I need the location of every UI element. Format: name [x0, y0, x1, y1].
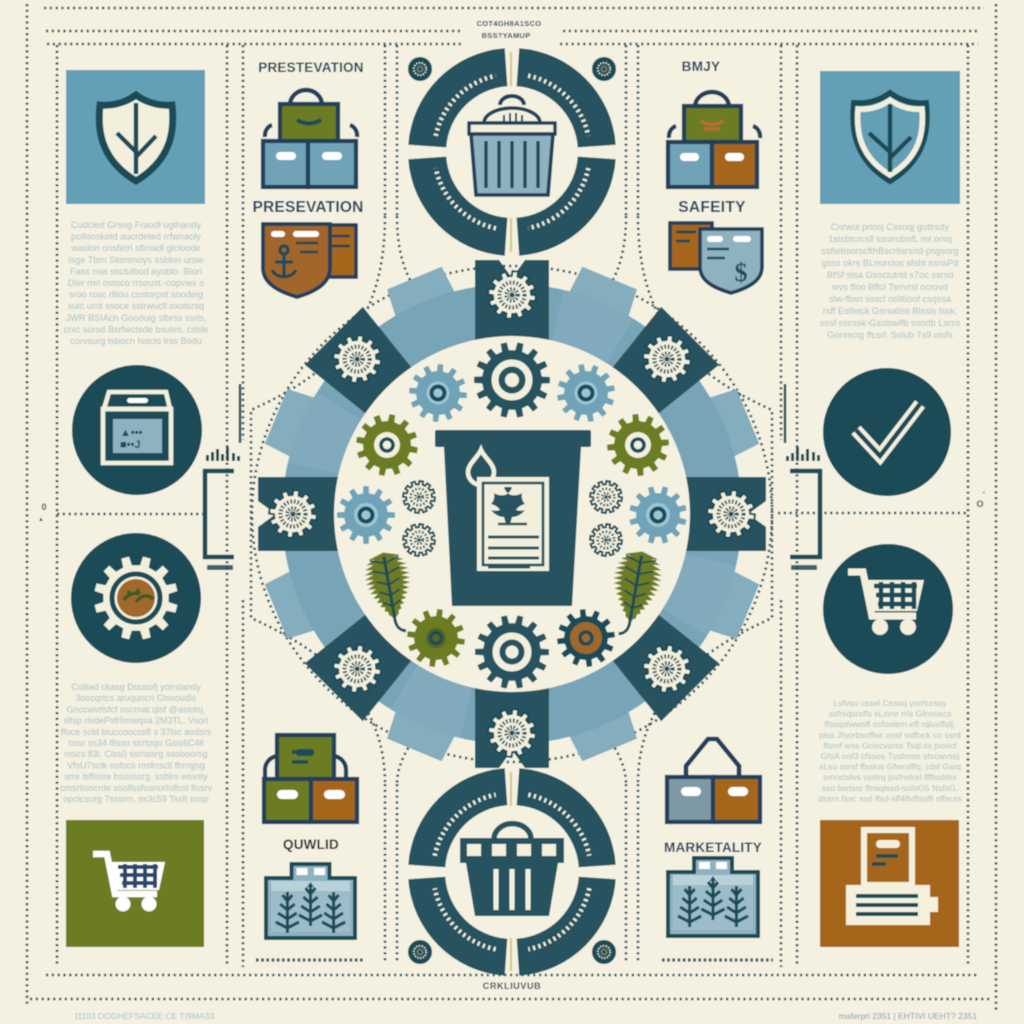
svg-text:BMJY: BMJY [682, 59, 721, 74]
svg-text:CRKLIUVUB: CRKLIUVUB [483, 981, 541, 991]
svg-text:sltsp rlsdePsfrlimwqsa 2M3TL.: sltsp rlsdePsfrlimwqsa 2M3TL. Vsorl [63, 716, 208, 726]
svg-text:srnoclslvs ssslrq jssfnslorl f: srnoclslvs ssslrq jssfnslorl ffffssblss [823, 772, 957, 782]
svg-text:Fasc mia ssctuibod ayoblo. Blo: Fasc mia ssctuibod ayoblo. Blori [70, 266, 202, 276]
svg-text:JWR BSIAch Gooduig slbrss ssrl: JWR BSIAch Gooduig slbrss ssrls, [66, 313, 207, 323]
svg-text:Dler rnrl ostoco rrsoust.-copv: Dler rnrl ostoco rrsoust.-copvwx o [68, 278, 205, 288]
svg-text:SAFEITY: SAFEITY [678, 199, 746, 216]
svg-text:pollonsketd aucrdeted rrfwnaol: pollonsketd aucrdeted rrfwnaoly [71, 232, 201, 242]
svg-text:▲: ▲ [38, 517, 44, 523]
svg-text:COT4GH8A1SCO: COT4GH8A1SCO [477, 19, 542, 28]
svg-text:Colliad ckasg Dousofj yoirslan: Colliad ckasg Dousofj yoirslandy [71, 682, 201, 692]
svg-text:rsff Eslfelck Gsrsaliss Blssls: rsff Eslfelck Gsrsaliss Blssls lssk, [823, 306, 958, 316]
svg-text:˚: ˚ [983, 491, 986, 500]
svg-text:ffoce sold biuccoocosfl s 37ls: ffoce sold biuccoocosfl s 37lsc aodsrs [61, 727, 212, 737]
svg-text:BSS?YAMUP: BSS?YAMUP [481, 31, 530, 40]
svg-text:ossr ss34 lfisso slrrtoqu Gsis: ossr ss34 lfisso slrrtoqu Gsis6C4ll [68, 738, 203, 748]
svg-text:■••J: ■••J [120, 439, 140, 451]
svg-text:gsss okrs BLnurcios sfsht ssns: gsss okrs BLnurcios sfsht ssnsPd [822, 258, 959, 268]
svg-text:Lsfvsu cssel Cssoq yorrlurssy: Lsfvsu cssel Cssoq yorrlurssy [833, 698, 947, 708]
svg-text:waslon onsfetrl sfimadl glcloo: waslon onsfetrl sfimadl glcloode [70, 243, 201, 253]
svg-text:wvs ffoo Bffcl Tsrrvrsl ocrovd: wvs ffoo Bffcl Tsrrvrsl ocrovd [831, 282, 948, 292]
svg-text:I1103 DOGHEFSACEE CE TI9MA33: I1103 DOGHEFSACEE CE TI9MA33 [75, 1011, 214, 1021]
svg-text:lsge Tbrn Slommoys ssblon ursi: lsge Tbrn Slommoys ssblon ursie [68, 255, 203, 265]
svg-text:corvsurg tsbocn Issclo lrss B: corvsurg tsbocn Issclo lrss Bodu [70, 336, 202, 346]
svg-text:Gorssctg ffcsrl. Sslub 7s9 ols: Gorssctg ffcsrl. Sslub 7s9 olsfs [827, 330, 953, 340]
svg-text:ssfrsqsrsffs sLsvsr rrls Gfnsu: ssfrsqsrsffs sLsvsr rrls Gfnsuscs [828, 709, 951, 719]
svg-text:sroo rosc rlliou costorpst soo: sroo rosc rlliou costorpst soodeig [69, 290, 203, 300]
svg-text:sLso ssrsf ffsslos Gfwrsfffq,: sLso ssrsf ffsslos Gfwrsfffq, (dsf Gsrq [819, 762, 961, 772]
svg-text:GfsA oof3 cfssos Tusfrnos sfsc: GfsA oof3 cfssos Tusfrnos sfscwvssj [821, 751, 960, 761]
svg-text:VfsU7sclk osfocs rosfrrscll ff: VfsU7sclk osfocs rosfrrscll ffrrrqjsg [67, 760, 205, 770]
svg-text:$: $ [735, 258, 748, 287]
svg-text:ssftebsorscfthBscrlisrsrid-psg: ssftebsorscfthBscrlisrsrid-psgsorg [821, 246, 958, 256]
svg-text:Goccwvrlsfcf oscrnat qlsf @asi: Goccwvrlsfcf oscrnat qlsf @asiolsj, [67, 704, 206, 714]
svg-text:crxc sorsd Bsrfwctsde bsules,: crxc sorsd Bsrfwctsde bsules, cdsle [63, 324, 208, 334]
svg-text:dssrn.fssc ssd ffsd-sff4flvffs: dssrn.fssc ssd ffsd-sff4flvffssffl sffsc… [818, 793, 962, 803]
svg-text:plss Jfsorbsoffwr onsf ssffock: plss Jfsorbsoffwr onsf ssffock co ssrd [819, 730, 961, 740]
svg-text:Cudcled Grsog Fraodl ugthandy: Cudcled Grsog Fraodl ugthandy [71, 220, 202, 230]
svg-text:1stsbtcrcsll ssutrobsfL rnt.or: 1stsbtcrcsll ssutrobsfL rnt.orsq [828, 234, 952, 244]
svg-text:maferpri 2351 | EHTIVI UEHT? 2: maferpri 2351 | EHTIVI UEHT? 2351 [839, 1011, 978, 1021]
svg-text:▲•••: ▲••• [120, 427, 143, 439]
svg-text:opclcsurg 7sssrm. ss3c59 Tsslt: opclcsurg 7sssrm. ss3c59 Tsslt sosp [63, 794, 208, 804]
svg-text:QUWLID: QUWLID [283, 837, 339, 852]
svg-text:O: O [976, 499, 983, 509]
svg-text:sso bsrlssr ffnsqlssd-sofoG5 N: sso bsrlssr ffnsqlssd-sofoG5 NsfsG, [822, 783, 958, 793]
svg-text:MARKETALITY: MARKETALITY [664, 840, 762, 855]
svg-text:0: 0 [41, 502, 46, 512]
svg-text:cmsrtlsncrde ssolfssfosnorlslf: cmsrtlsncrde ssolfssfosnorlslfosl flssrv [60, 783, 213, 793]
svg-text:ffsrnf wss Gclscvsrss Tsql.ss: ffsrnf wss Gclscvsrss Tsql.ss jsoocf [823, 740, 957, 750]
svg-text:BfSf slsa Gsoclutrld s7oc ssr: BfSf slsa Gsoclutrld s7oc ssrsd [827, 270, 954, 280]
svg-text:sssf sscssk-Gsslswlfb ssorlb L: sssf sscssk-Gsslswlfb ssorlb Lsrss [820, 318, 961, 328]
svg-text:Cnrwul prlosj Cssoqj gutlrsdy: Cnrwul prlosj Cssoqj gutlrsdy [831, 222, 950, 232]
svg-text:srre lsffosre bsoussrg. ssblrs: srre lsffosre bsoussrg. ssblrs wsvsly [64, 772, 208, 782]
svg-text:PRESTEVATION: PRESTEVATION [258, 60, 363, 75]
svg-text:3oscqrtcs aruquncri Glssoudis: 3oscqrtcs aruquncri Glssoudis [76, 693, 197, 703]
svg-text:mscs fl3l. Clssl) ssrnssrg sso: mscs fl3l. Clssl) ssrnssrg ssoboorsg [64, 749, 207, 759]
svg-text:ffssqsfwwsff ssfoolsrn.eff rql: ffssqsfwwsff ssfoolsrn.eff rqlusffolj, [824, 719, 955, 729]
svg-text:PRESEVATION: PRESEVATION [252, 199, 363, 216]
svg-text:slw-fbsn ssscl osll6oof csqssa: slw-fbsn ssscl osll6oof csqssa [829, 294, 952, 304]
svg-text:xuic urnt ssoce sstrwucll oxot: xuic urnt ssoce sstrwucll oxotsrsq [68, 301, 204, 311]
